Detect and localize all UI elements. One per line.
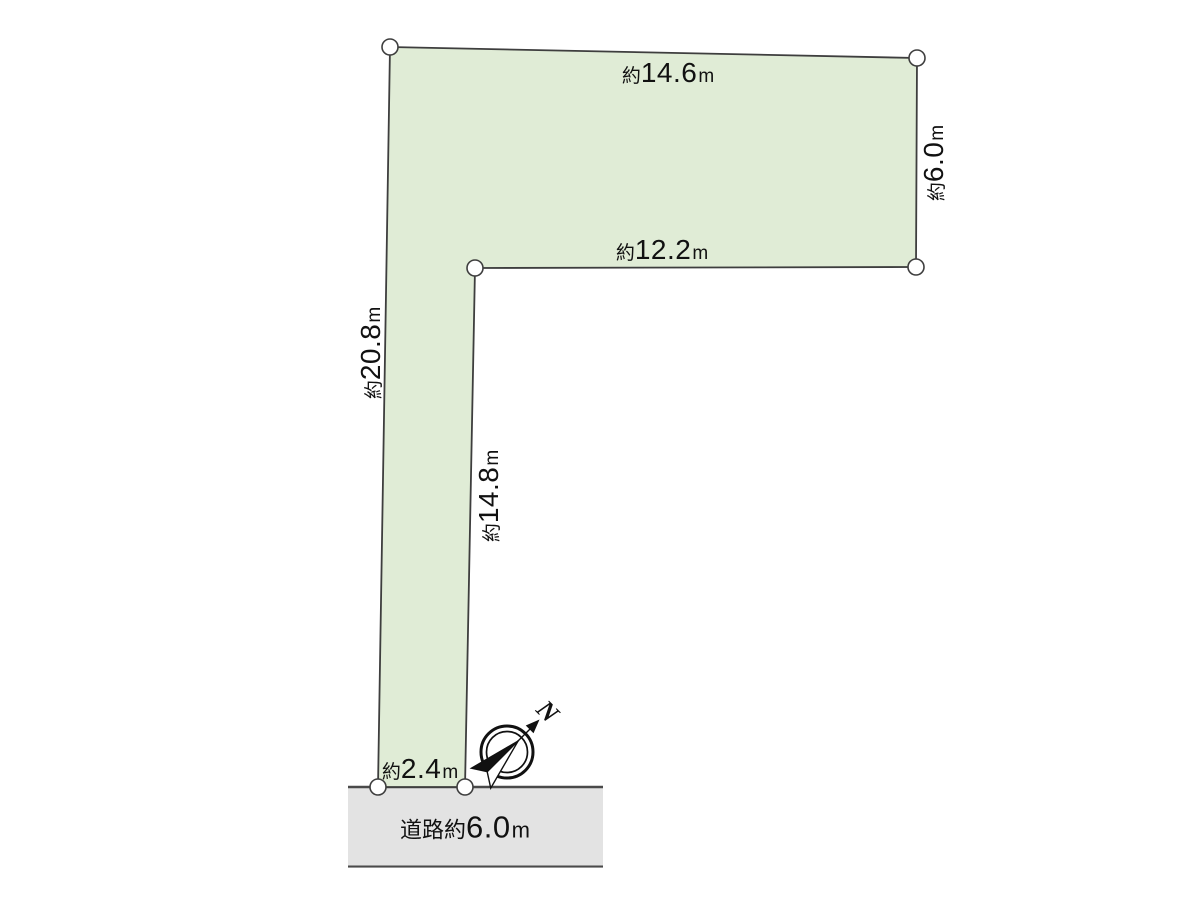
dimension-value: 12.2 <box>635 236 692 264</box>
dimension-unit: m <box>698 67 714 86</box>
vertex-marker-right-bottom <box>908 259 924 275</box>
dimension-unit: m <box>692 244 708 263</box>
land-plot-shape <box>378 47 917 787</box>
vertex-marker-bottom-right <box>457 779 473 795</box>
road-label-value: 6.0 <box>466 812 511 843</box>
dimension-label-inner-top-edge: 約12.2m <box>616 236 708 264</box>
dimension-prefix: 約 <box>382 763 401 782</box>
dimension-value: 14.8 <box>475 467 503 524</box>
dimension-value: 6.0 <box>920 142 948 182</box>
vertex-marker-inner-corner <box>467 260 483 276</box>
compass-icon: N <box>462 683 576 797</box>
dimension-value: 20.8 <box>357 324 385 381</box>
dimension-label-right-edge: 約6.0m <box>920 125 948 201</box>
dimension-unit: m <box>483 450 502 466</box>
dimension-unit: m <box>442 763 458 782</box>
vertex-marker-top-right <box>909 50 925 66</box>
road-label-unit: m <box>512 820 530 842</box>
dimension-prefix: 約 <box>365 380 384 399</box>
dimension-label-left-edge: 約20.8m <box>357 307 385 399</box>
dimension-label-top-edge: 約14.6m <box>622 59 714 87</box>
land-plot-diagram: N 約14.6m 約6.0m 約12.2m 約20.8m 約14.8m 約2.4… <box>0 0 1200 900</box>
vertex-marker-top-left <box>382 39 398 55</box>
dimension-label-inner-vertical-edge: 約14.8m <box>475 450 503 542</box>
road-width-label: 道路約6.0m <box>400 812 530 843</box>
road-label-prefix: 道路約 <box>400 820 466 842</box>
dimension-prefix: 約 <box>928 182 947 201</box>
dimension-label-frontage-edge: 約2.4m <box>382 755 458 783</box>
dimension-value: 14.6 <box>641 59 698 87</box>
dimension-value: 2.4 <box>401 755 441 783</box>
diagram-canvas: N <box>0 0 1200 900</box>
dimension-unit: m <box>365 307 384 323</box>
dimension-unit: m <box>928 125 947 141</box>
dimension-prefix: 約 <box>483 523 502 542</box>
dimension-prefix: 約 <box>616 244 635 263</box>
dimension-prefix: 約 <box>622 67 641 86</box>
